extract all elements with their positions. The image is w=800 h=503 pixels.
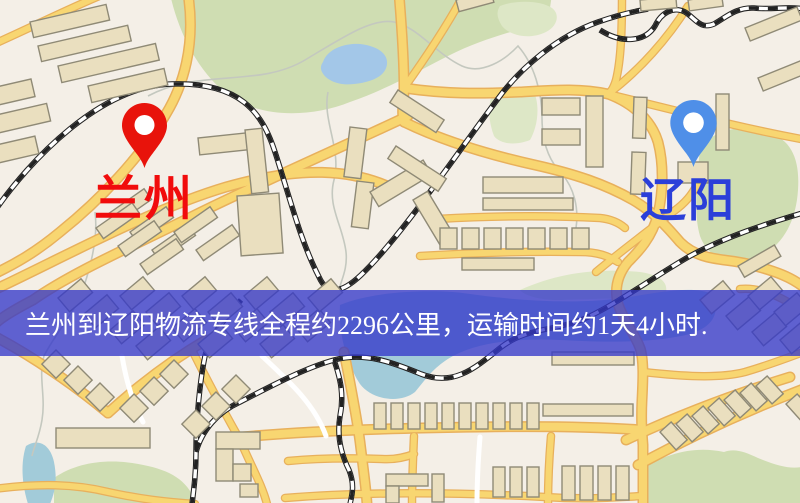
origin-pin-icon[interactable] xyxy=(122,103,167,168)
destination-pin-icon[interactable] xyxy=(670,100,717,167)
route-info-banner: 兰州到辽阳物流专线全程约2296公里，运输时间约1天4小时. xyxy=(0,290,800,356)
destination-marker[interactable] xyxy=(670,100,717,172)
destination-label: 辽阳 xyxy=(640,178,736,224)
origin-label: 兰州 xyxy=(94,176,194,224)
map-screenshot: 兰州 辽阳 兰州到辽阳物流专线全程约2296公里，运输时间约1天4小时. xyxy=(0,0,800,503)
origin-marker[interactable] xyxy=(122,103,167,173)
map-background xyxy=(0,0,800,503)
route-info-text: 兰州到辽阳物流专线全程约2296公里，运输时间约1天4小时. xyxy=(0,305,708,342)
